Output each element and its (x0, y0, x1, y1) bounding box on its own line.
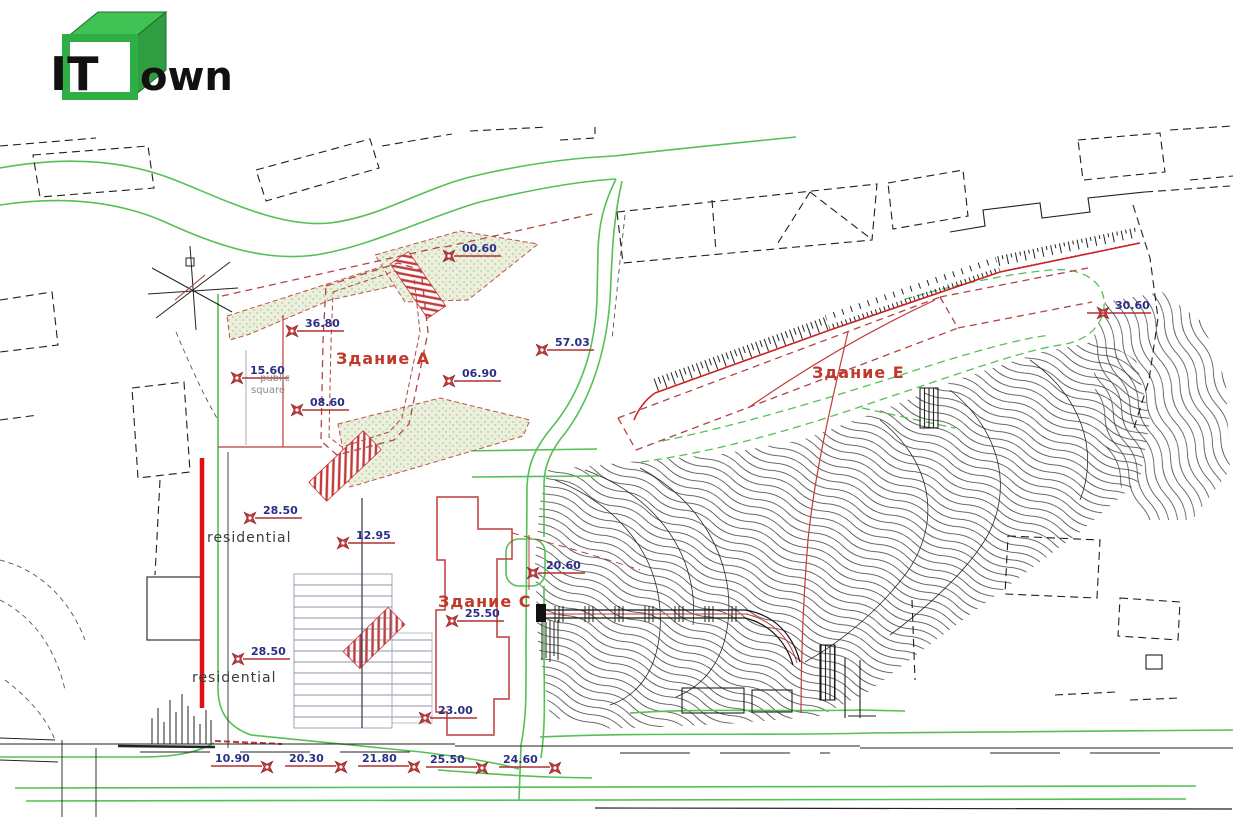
elevation-value: 08.60 (310, 396, 345, 409)
elevation-marker: 25.50 (426, 753, 493, 779)
elevation-value: 21.80 (362, 752, 397, 765)
terrain-contours (0, 292, 1230, 740)
elevation-marker: 36.80 (281, 317, 344, 342)
elevation-value: 06.90 (462, 367, 497, 380)
residential-label-lower: residential (192, 670, 276, 686)
residential-label-upper: residential (207, 530, 291, 546)
elevation-value: 10.90 (215, 752, 250, 765)
elevation-value: 25.50 (430, 753, 465, 766)
elevation-marker: 20.30 (285, 752, 352, 778)
elevation-value: 12.95 (356, 529, 391, 542)
survey-symbol (148, 246, 238, 420)
public-square-label-line1: public (260, 373, 290, 384)
elevation-marker: 12.95 (332, 529, 395, 554)
elevation-value: 30.60 (1115, 299, 1150, 312)
elevation-marker: 28.50 (227, 645, 290, 670)
public-square-label-line2: square (251, 385, 285, 396)
logo-text-it: IT (50, 47, 99, 101)
elevation-value: 57.03 (555, 336, 590, 349)
elevation-marker: 08.60 (286, 396, 349, 421)
elevation-marker: 23.00 (414, 704, 477, 729)
elevation-value: 28.50 (263, 504, 298, 517)
elevation-value: 36.80 (305, 317, 340, 330)
elevation-marker: 10.90 (211, 752, 278, 778)
elevation-marker: 28.50 (239, 504, 302, 529)
building-c-label: Здание С (438, 592, 532, 611)
elevation-value: 20.60 (546, 559, 581, 572)
logo-text-own: own (140, 54, 233, 100)
site-plan-screenshot: 36.80 00.60 57.03 15.60 08.60 06.90 (0, 0, 1233, 817)
elevation-value: 28.50 (251, 645, 286, 658)
elevation-marker: 57.03 (531, 336, 594, 361)
elevation-marker: 06.90 (438, 367, 501, 392)
elevation-value: 00.60 (462, 242, 497, 255)
elevation-marker: 21.80 (358, 752, 425, 778)
building-e-label: Здание Е (812, 363, 905, 382)
elevation-value: 20.30 (289, 752, 324, 765)
elevation-value: 23.00 (438, 704, 473, 717)
site-plan-drawing: 36.80 00.60 57.03 15.60 08.60 06.90 (0, 0, 1233, 817)
itown-logo: IT own (28, 4, 258, 104)
elevation-value: 24.60 (503, 753, 538, 766)
building-a-label: Здание А (336, 349, 430, 368)
